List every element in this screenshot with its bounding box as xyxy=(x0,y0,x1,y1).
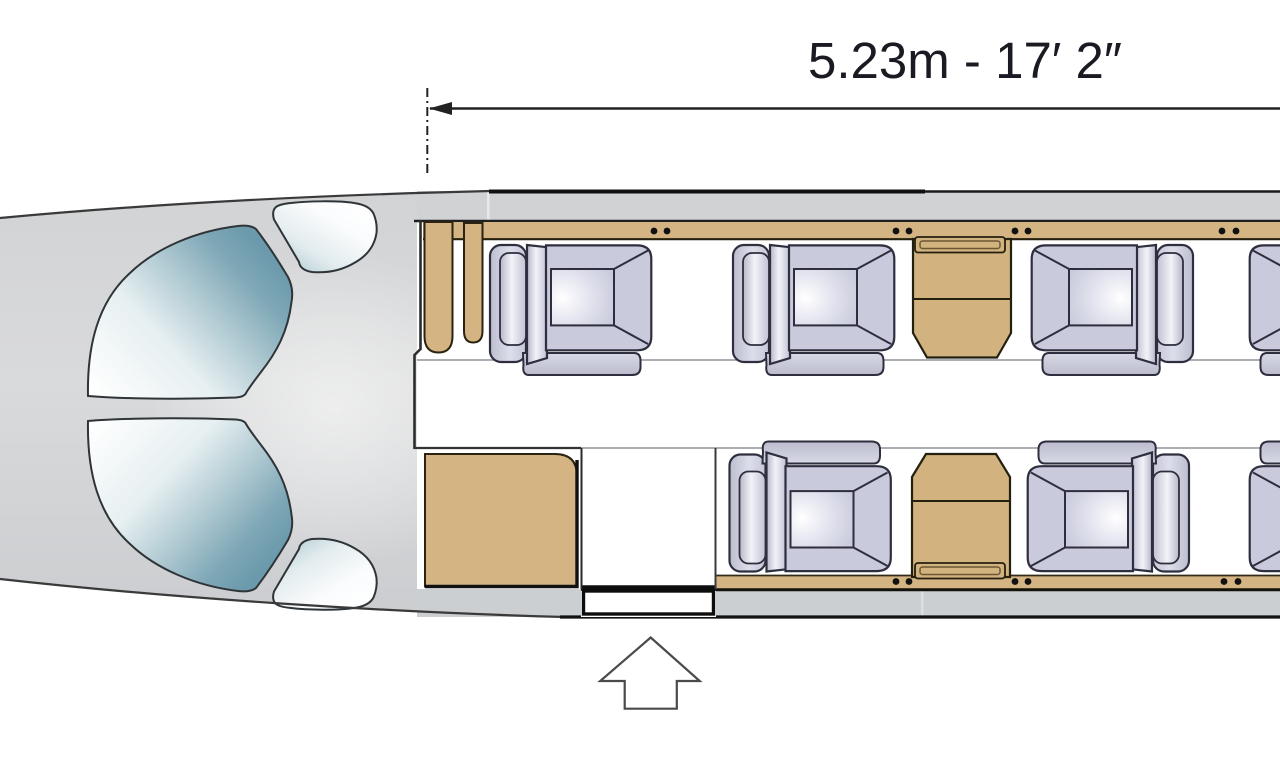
svg-text:5.23m - 17′ 2″: 5.23m - 17′ 2″ xyxy=(808,32,1122,89)
